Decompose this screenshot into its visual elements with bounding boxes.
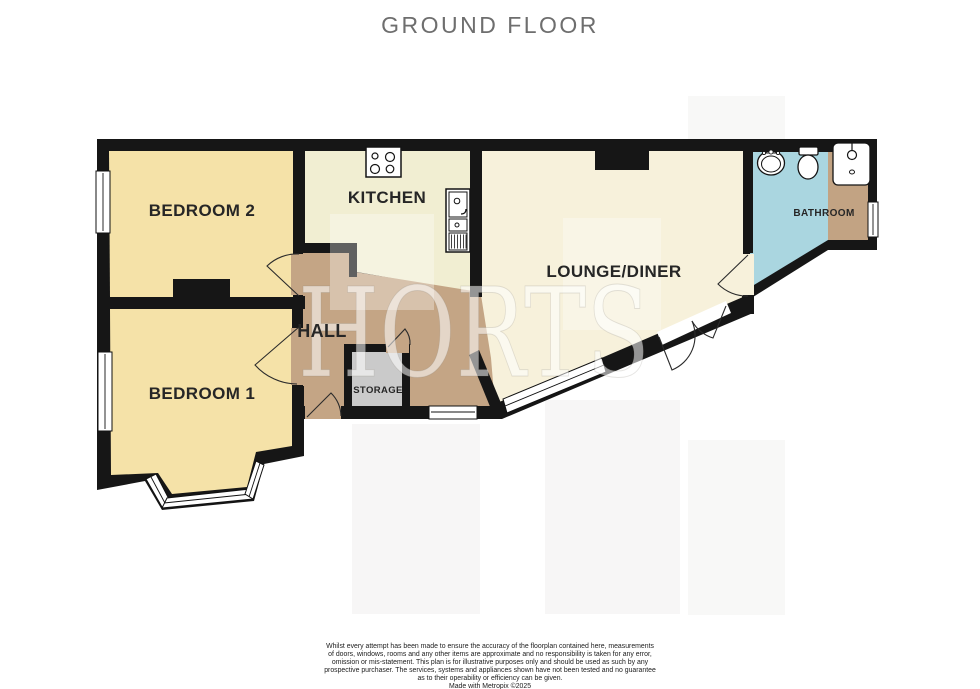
floorplan-page: GROUND FLOOR	[0, 0, 980, 689]
storage-label: STORAGE	[353, 385, 403, 396]
bedroom-2-window	[96, 171, 110, 233]
bedroom-2-floor	[109, 151, 293, 297]
washbasin-icon	[758, 150, 785, 175]
entrance-door-opening	[305, 405, 341, 419]
hob-icon	[366, 147, 401, 177]
lounge-diner-label: LOUNGE/DINER	[546, 262, 681, 281]
disclaimer-line: omission or mis-statement. This plan is …	[0, 659, 980, 667]
hall-label: HALL	[297, 321, 347, 341]
disclaimer-line: Whilst every attempt has been made to en…	[0, 643, 980, 651]
hall-window	[429, 406, 477, 419]
disclaimer-line: prospective purchaser. The services, sys…	[0, 667, 980, 675]
bathroom-label: BATHROOM	[793, 208, 854, 219]
bedroom-1-label: BEDROOM 1	[149, 384, 256, 403]
bathroom-window	[868, 202, 878, 237]
sink-unit-icon	[446, 189, 470, 252]
toilet-icon	[798, 147, 818, 179]
disclaimer: Whilst every attempt has been made to en…	[0, 643, 980, 689]
kitchen-label: KITCHEN	[348, 188, 426, 207]
floorplan-canvas: HORTS BEDROOM 2 KITCHEN LOUNGE/DINER BAT…	[0, 0, 980, 689]
bedroom-2-label: BEDROOM 2	[149, 201, 256, 220]
made-with-credit: Made with Metropix ©2025	[0, 683, 980, 689]
bedroom-1-window	[98, 352, 112, 431]
shower-icon	[833, 143, 870, 185]
disclaimer-line: of doors, windows, rooms and any other i…	[0, 651, 980, 659]
bathroom-door-opening	[742, 254, 754, 295]
watermark-text: HORTS	[298, 262, 650, 406]
